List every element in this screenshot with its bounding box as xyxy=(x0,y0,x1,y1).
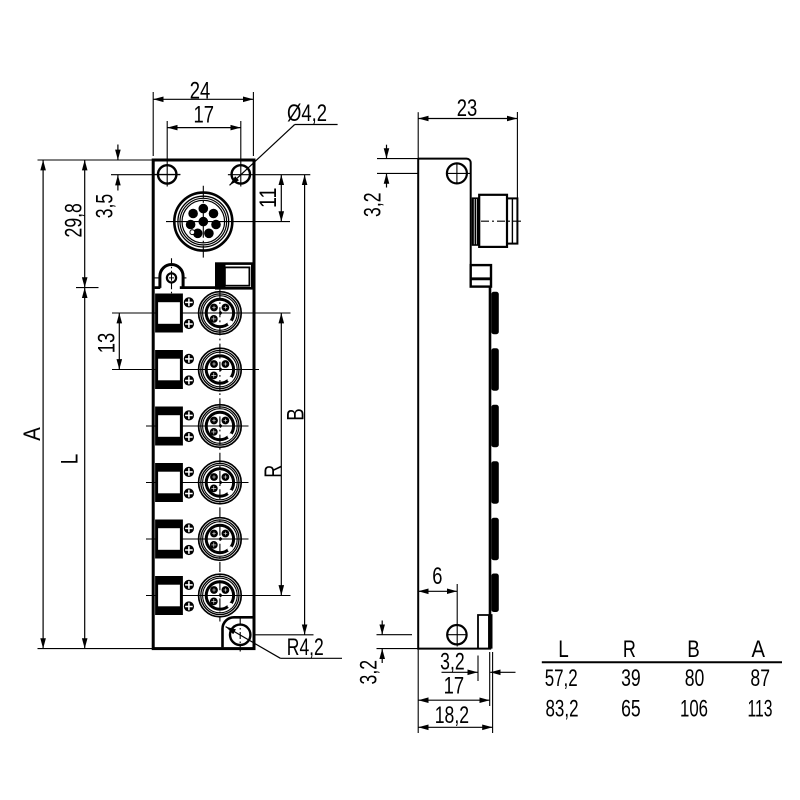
svg-text:R: R xyxy=(260,465,287,478)
svg-text:3,2: 3,2 xyxy=(360,192,387,217)
svg-text:23: 23 xyxy=(457,95,478,122)
svg-text:17: 17 xyxy=(194,101,215,128)
svg-text:83,2: 83,2 xyxy=(546,695,579,722)
svg-text:R: R xyxy=(623,636,636,663)
svg-text:L: L xyxy=(558,636,569,663)
svg-text:13: 13 xyxy=(94,333,121,354)
svg-text:Ø4,2: Ø4,2 xyxy=(287,100,327,127)
svg-text:39: 39 xyxy=(621,665,641,692)
svg-text:L: L xyxy=(57,454,84,465)
svg-text:29,8: 29,8 xyxy=(60,203,87,237)
svg-text:11: 11 xyxy=(255,188,282,209)
svg-text:18,2: 18,2 xyxy=(435,702,469,729)
svg-text:3,2: 3,2 xyxy=(356,660,383,685)
svg-text:57,2: 57,2 xyxy=(545,665,578,692)
svg-text:65: 65 xyxy=(621,695,641,722)
svg-text:3,2: 3,2 xyxy=(440,648,465,675)
svg-text:3,5: 3,5 xyxy=(91,194,118,219)
svg-text:106: 106 xyxy=(680,695,708,722)
svg-text:87: 87 xyxy=(750,665,770,692)
svg-text:80: 80 xyxy=(685,665,705,692)
svg-text:113: 113 xyxy=(748,695,773,722)
svg-text:A: A xyxy=(751,636,765,663)
svg-text:B: B xyxy=(283,408,310,421)
svg-text:A: A xyxy=(19,427,46,441)
svg-text:B: B xyxy=(687,636,700,663)
svg-text:R4,2: R4,2 xyxy=(287,634,324,661)
svg-text:6: 6 xyxy=(432,563,442,590)
svg-text:17: 17 xyxy=(444,672,465,699)
